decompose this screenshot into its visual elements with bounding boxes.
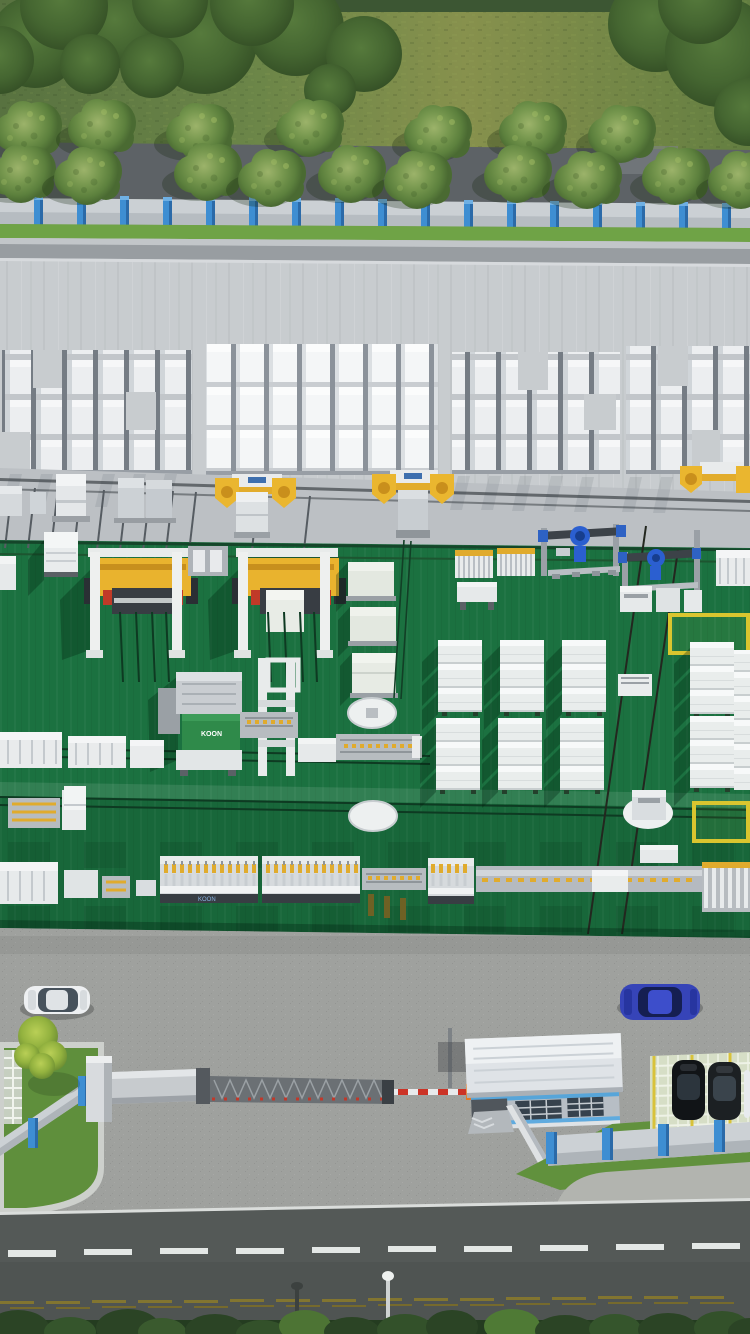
- svg-text:KOON: KOON: [201, 731, 222, 738]
- svg-text:KOON: KOON: [198, 897, 216, 903]
